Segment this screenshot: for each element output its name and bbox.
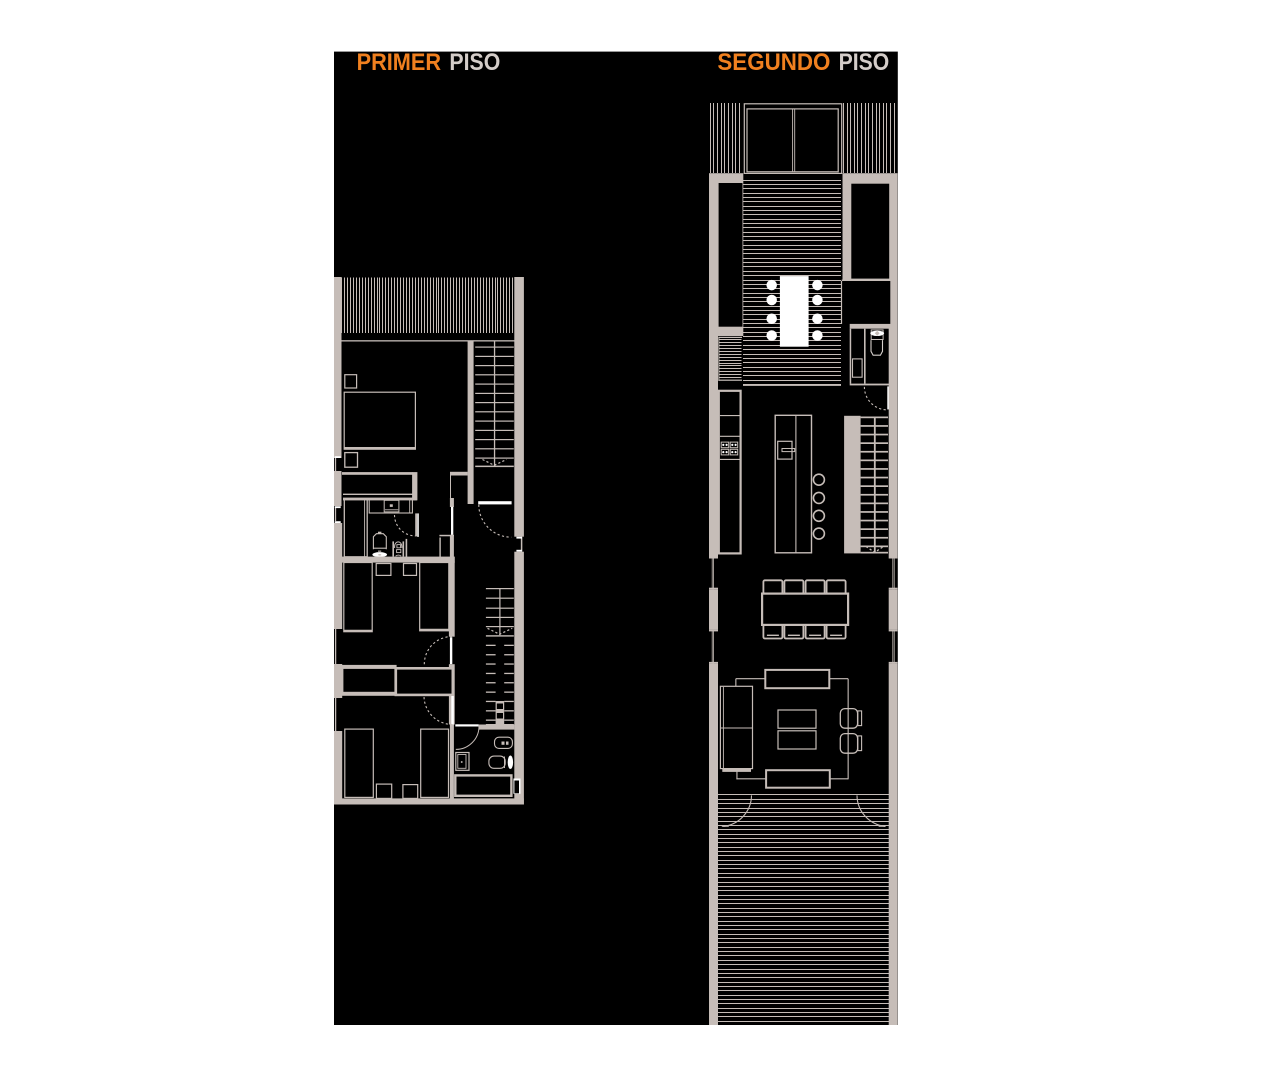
svg-text:PRIMER: PRIMER (357, 49, 442, 76)
svg-text:PISO: PISO (449, 49, 500, 76)
svg-text:PISO: PISO (839, 49, 890, 76)
svg-text:SEGUNDO: SEGUNDO (717, 49, 830, 76)
